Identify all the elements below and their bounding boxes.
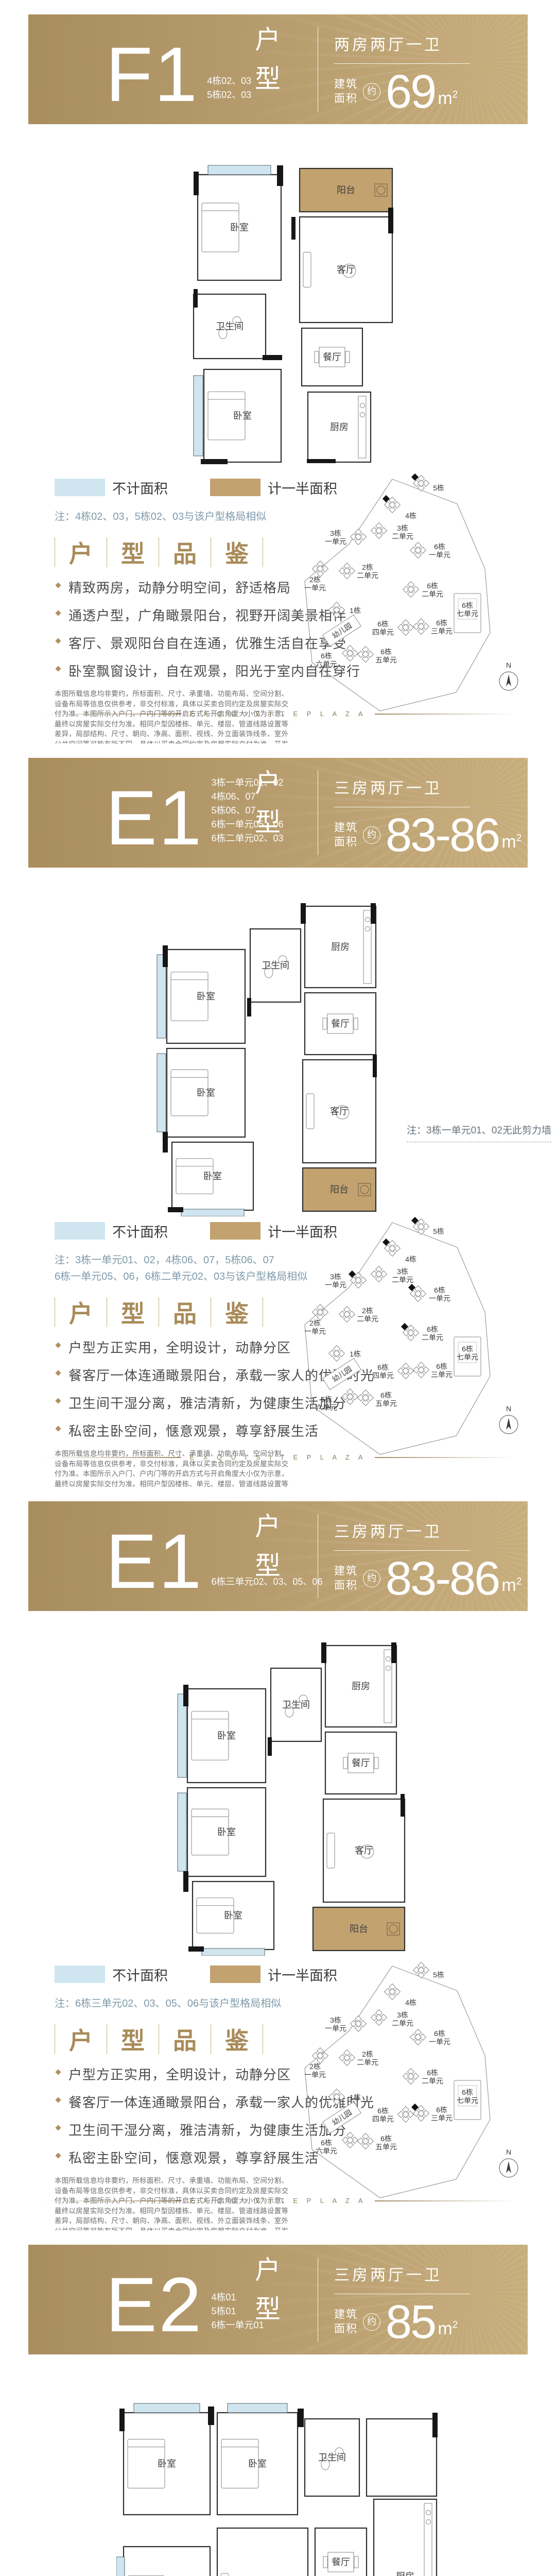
svg-text:卫生间: 卫生间: [216, 321, 244, 332]
unit-location-line: 4栋02、03: [207, 74, 251, 88]
svg-text:五单元: 五单元: [375, 2143, 397, 2151]
svg-text:四单元: 四单元: [372, 2115, 394, 2123]
header-right: 两房两厅一卫 建筑 面积 约 69 m2: [334, 32, 528, 113]
title-char: 品: [159, 1295, 211, 1329]
unit-code: E1: [106, 1532, 203, 1590]
legend-label-no-area: 不计面积: [112, 478, 168, 498]
legend-label-no-area: 不计面积: [112, 1221, 168, 1241]
footer-rule-right: [375, 2200, 515, 2201]
area-value: 83-86: [386, 814, 499, 857]
site-building: 5栋: [411, 473, 444, 492]
svg-text:2栋: 2栋: [362, 563, 373, 571]
svg-text:5栋: 5栋: [433, 484, 444, 492]
site-building: 2栋一单元: [304, 2048, 328, 2079]
legend-label-no-area: 不计面积: [112, 1964, 168, 1985]
svg-text:6栋: 6栋: [427, 2069, 438, 2077]
approx-badge: 约: [363, 826, 380, 844]
svg-text:厨房: 厨房: [331, 942, 350, 952]
brand-footer: E X Q U I S I T E P L A Z A: [41, 710, 515, 718]
room-卧室: 卧室: [187, 1788, 266, 1876]
layout-description: 三房两厅一卫: [334, 2262, 528, 2285]
svg-text:3栋: 3栋: [330, 529, 341, 537]
area-value: 85: [386, 2301, 435, 2344]
svg-text:2栋: 2栋: [309, 2062, 321, 2071]
area-row: 建筑 面积 约 83-86 m2: [334, 1557, 528, 1600]
site-building: 6栋四单元: [372, 1363, 413, 1380]
site-building: 6栋六单元: [316, 646, 358, 668]
svg-text:七单元: 七单元: [457, 1353, 478, 1361]
site-building: 6栋二单元: [401, 1323, 443, 1342]
unit-type-char: 型: [255, 809, 281, 835]
header-right: 三房两厅一卫 建筑 面积 约 83-86 m2: [334, 775, 528, 857]
svg-text:一单元: 一单元: [304, 584, 326, 592]
brand-name: E X Q U I S I T E P L A Z A: [181, 1453, 374, 1461]
site-building: 3栋一单元: [325, 529, 366, 546]
unit-type-char: 户: [255, 27, 281, 53]
site-building: 6栋一单元: [410, 543, 450, 559]
header-underline: [334, 63, 470, 64]
svg-text:6栋: 6栋: [380, 2134, 392, 2143]
site-building: 6栋六单元: [316, 2132, 358, 2155]
svg-text:3栋: 3栋: [330, 2016, 341, 2024]
brand-name: E X Q U I S I T E P L A Z A: [181, 2197, 374, 2205]
title-char: 户: [55, 535, 107, 569]
room-厨房: 厨房: [325, 1646, 396, 1727]
svg-text:卧室: 卧室: [230, 223, 249, 233]
header-underline: [334, 807, 470, 807]
title-char: 型: [107, 2022, 159, 2056]
room-卫生间: 卫生间: [250, 929, 301, 1002]
svg-text:二单元: 二单元: [422, 2077, 443, 2085]
svg-text:6栋: 6栋: [462, 1345, 473, 1353]
layout-description: 两房两厅一卫: [334, 32, 528, 55]
svg-text:卧室: 卧室: [224, 1910, 242, 1921]
floor-plan: 厨房卫生间卧室餐厅卧室卧室客厅阳台: [172, 1641, 430, 1956]
site-building: 6栋五单元: [358, 647, 397, 664]
area-value: 69: [386, 71, 435, 113]
room-卧室: 卧室: [193, 1882, 274, 1950]
title-char: 鉴: [211, 1295, 263, 1329]
unit-flyer-panel: E1 3栋一单元01、024栋06、075栋06、076栋一单元05、066栋二…: [0, 743, 556, 1487]
svg-text:二单元: 二单元: [357, 2058, 378, 2066]
svg-text:6栋: 6栋: [321, 1395, 332, 1403]
area-label-line: 建筑: [334, 1564, 358, 1579]
site-building: 6栋三单元: [413, 619, 453, 635]
site-building: 6栋四单元: [372, 2107, 413, 2123]
svg-text:二单元: 二单元: [392, 1276, 413, 1284]
unit-m: m: [438, 89, 452, 108]
title-char: 品: [159, 535, 211, 569]
flyer-page: F1 4栋02、035栋02、03 户 型 两房两厅一卫 建筑 面积 约 69: [0, 0, 556, 2576]
svg-text:四单元: 四单元: [372, 1371, 394, 1380]
svg-text:卫生间: 卫生间: [282, 1700, 310, 1710]
svg-text:餐厅: 餐厅: [323, 352, 341, 362]
svg-text:三单元: 三单元: [431, 627, 453, 635]
room-客厅: 客厅: [217, 2528, 308, 2576]
unit-type-label: 户 型: [255, 770, 281, 835]
room-卧室: 卧室: [187, 1689, 266, 1783]
unit-flyer-panel: E1 6栋三单元02、03、05、06 户 型 三房两厅一卫 建筑 面积 约 8…: [0, 1487, 556, 2230]
svg-text:6栋: 6栋: [427, 582, 438, 590]
title-bar: [263, 2024, 263, 2054]
room-卧室: 卧室: [217, 2413, 298, 2515]
room-客厅: 客厅: [303, 1060, 376, 1163]
room-厨房: 厨房: [308, 392, 371, 462]
title-char: 鉴: [211, 535, 263, 569]
svg-text:卧室: 卧室: [197, 991, 215, 1002]
svg-text:N: N: [506, 1404, 511, 1413]
svg-text:一单元: 一单元: [429, 551, 450, 559]
site-building: 2栋一单元: [304, 1304, 328, 1335]
area-label-line: 面积: [334, 2322, 358, 2336]
site-building: 6栋七单元: [454, 1337, 481, 1376]
approx-badge: 约: [363, 83, 380, 100]
room-餐厅: 餐厅: [315, 2528, 367, 2576]
room-厨房: 厨房: [374, 2499, 437, 2576]
unit-sup: 2: [516, 1576, 522, 1587]
unit-type-label: 户 型: [255, 2257, 281, 2322]
site-building: 1栋: [329, 2089, 361, 2105]
room-客厅: 客厅: [300, 217, 392, 323]
svg-text:厨房: 厨房: [330, 422, 349, 432]
svg-text:三单元: 三单元: [431, 1370, 453, 1379]
site-building: 幼儿园: [323, 2102, 361, 2133]
svg-text:N: N: [506, 661, 511, 669]
site-building: 4栋: [383, 495, 416, 520]
header-right: 三房两厅一卫 建筑 面积 约 83-86 m2: [334, 1519, 528, 1600]
svg-text:6栋: 6栋: [434, 543, 445, 551]
site-building: 幼儿园: [323, 1358, 361, 1389]
svg-text:6栋: 6栋: [377, 2107, 389, 2115]
svg-text:一单元: 一单元: [429, 2038, 450, 2046]
svg-text:4栋: 4栋: [405, 1255, 416, 1263]
legend-swatch-no-area: [55, 1965, 105, 1983]
svg-text:三单元: 三单元: [431, 2114, 453, 2122]
room-卧室: 卧室: [124, 2413, 210, 2515]
svg-text:2栋: 2栋: [309, 1319, 321, 1327]
svg-text:6栋: 6栋: [377, 620, 389, 628]
site-building: 5栋: [411, 1217, 444, 1235]
svg-text:餐厅: 餐厅: [352, 1758, 370, 1768]
site-building: 1栋: [329, 602, 361, 618]
svg-text:6栋: 6栋: [434, 2029, 445, 2038]
svg-text:客厅: 客厅: [337, 265, 355, 275]
unit-type-char: 户: [255, 2257, 281, 2283]
svg-text:6栋: 6栋: [427, 1325, 438, 1333]
svg-text:6栋: 6栋: [436, 1362, 447, 1370]
site-building: 2栋一单元: [304, 561, 328, 592]
area-label-line: 建筑: [334, 2308, 358, 2322]
room-卧室: 卧室: [172, 1142, 253, 1210]
site-building: 5栋: [413, 1962, 444, 1979]
area-row: 建筑 面积 约 85 m2: [334, 2301, 528, 2344]
svg-text:卧室: 卧室: [197, 1088, 215, 1098]
site-building: 3栋二单元: [371, 2010, 413, 2027]
layout-description: 三房两厅一卫: [334, 1519, 528, 1541]
unit-flyer-panel: E2 4栋015栋016栋一单元01 户 型 三房两厅一卫 建筑 面积 约 85: [0, 2230, 556, 2576]
header-right: 三房两厅一卫 建筑 面积 约 85 m2: [334, 2262, 528, 2344]
unit-locations: 4栋02、035栋02、03: [207, 74, 251, 104]
room-餐厅: 餐厅: [325, 1732, 396, 1794]
footer-rule-left: [41, 714, 181, 715]
title-bar: [263, 537, 263, 567]
area-label-line: 建筑: [334, 821, 358, 835]
unit-m: m: [501, 1575, 516, 1595]
svg-text:1栋: 1栋: [350, 606, 361, 615]
svg-text:一单元: 一单元: [304, 1327, 326, 1335]
header-underline: [334, 2294, 470, 2294]
room-卫生间: 卫生间: [194, 294, 266, 359]
svg-text:餐厅: 餐厅: [332, 2557, 350, 2567]
svg-text:卫生间: 卫生间: [262, 960, 289, 971]
header-divider: [318, 27, 318, 112]
panel-header: E1 3栋一单元01、024栋06、075栋06、076栋一单元05、066栋二…: [28, 758, 528, 868]
area-value: 83-86: [386, 1557, 499, 1600]
unit-type-char: 型: [255, 2296, 281, 2322]
svg-text:6栋: 6栋: [380, 1391, 392, 1399]
svg-text:二单元: 二单元: [357, 1315, 378, 1323]
brand-footer: E X Q U I S I T E P L A Z A: [41, 2197, 515, 2205]
svg-text:卧室: 卧室: [233, 411, 252, 421]
approx-badge: 约: [363, 1570, 380, 1587]
svg-text:卧室: 卧室: [217, 1827, 236, 1837]
svg-text:阳台: 阳台: [330, 1184, 349, 1195]
footer-rule-right: [375, 1457, 515, 1458]
room-客厅: 客厅: [323, 1799, 405, 1902]
svg-text:厨房: 厨房: [396, 2571, 414, 2576]
room-卧室: 卧室: [167, 1048, 245, 1137]
panel-header: E2 4栋015栋016栋一单元01 户 型 三房两厅一卫 建筑 面积 约 85: [28, 2245, 528, 2354]
site-building: 6栋三单元: [411, 2104, 453, 2122]
svg-text:6栋: 6栋: [377, 1363, 389, 1371]
svg-text:6栋: 6栋: [321, 2139, 332, 2147]
header-divider: [318, 2257, 318, 2342]
unit-type-label: 户 型: [255, 1514, 281, 1579]
svg-text:二单元: 二单元: [357, 571, 378, 580]
svg-text:N: N: [506, 2148, 511, 2156]
site-building: 6栋五单元: [358, 1390, 397, 1408]
room-卫生间: 卫生间: [271, 1668, 321, 1741]
site-building: 6栋二单元: [403, 2069, 443, 2085]
svg-text:6栋: 6栋: [436, 619, 447, 627]
svg-text:5栋: 5栋: [433, 1971, 444, 1979]
svg-text:一单元: 一单元: [304, 2071, 326, 2079]
unit-location-line: 5栋02、03: [207, 88, 251, 102]
unit-type-char: 型: [255, 1553, 281, 1579]
svg-text:2栋: 2栋: [309, 575, 321, 584]
svg-text:一单元: 一单元: [325, 537, 346, 546]
site-building: 3栋一单元: [325, 2016, 366, 2032]
area-label-line: 面积: [334, 1579, 358, 1593]
legend-swatch-no-area: [55, 479, 105, 496]
svg-text:七单元: 七单元: [457, 609, 478, 618]
unit-code: E2: [106, 2275, 203, 2334]
svg-text:4栋: 4栋: [405, 512, 416, 520]
unit-m: m: [438, 2319, 452, 2338]
svg-text:七单元: 七单元: [457, 2096, 478, 2105]
site-building: 2栋二单元: [339, 563, 378, 580]
svg-text:3栋: 3栋: [397, 2011, 408, 2019]
svg-text:6栋: 6栋: [321, 652, 332, 660]
room-卫生间: 卫生间: [305, 2419, 359, 2496]
area-label-line: 建筑: [334, 77, 358, 92]
site-building: 4栋: [383, 1239, 416, 1263]
svg-text:阳台: 阳台: [337, 185, 355, 195]
unit-flyer-panel: F1 4栋02、035栋02、03 户 型 两房两厅一卫 建筑 面积 约 69: [0, 0, 556, 743]
site-building: 6栋五单元: [358, 2133, 397, 2151]
unit-m: m: [501, 832, 516, 852]
unit-type-char: 户: [255, 1514, 281, 1539]
svg-text:6栋: 6栋: [462, 601, 473, 609]
room: [367, 2419, 437, 2496]
svg-text:1栋: 1栋: [350, 1350, 361, 1358]
svg-text:餐厅: 餐厅: [331, 1019, 350, 1029]
area-label: 建筑 面积: [334, 77, 358, 107]
title-char: 鉴: [211, 2022, 263, 2056]
unit-type-char: 型: [255, 66, 281, 92]
unit-code: E1: [106, 788, 203, 847]
legend-swatch-half-area: [210, 1965, 260, 1983]
svg-text:2栋: 2栋: [362, 2050, 373, 2058]
svg-text:3栋: 3栋: [397, 1267, 408, 1276]
area-label: 建筑 面积: [334, 821, 358, 850]
unit-sup: 2: [453, 89, 458, 100]
site-building: 幼儿园: [323, 615, 361, 646]
unit-sup: 2: [516, 833, 522, 843]
svg-text:卫生间: 卫生间: [318, 2452, 346, 2463]
legend-swatch-half-area: [210, 1222, 260, 1240]
svg-text:四单元: 四单元: [372, 628, 394, 636]
room-卧室: 卧室: [124, 2547, 210, 2576]
title-char: 品: [159, 2022, 211, 2056]
svg-text:4栋: 4栋: [405, 1998, 416, 2007]
title-char: 型: [107, 1295, 159, 1329]
footer-rule-right: [375, 714, 515, 715]
header-divider: [318, 770, 318, 855]
floor-plan: 厨房卫生间卧室餐厅卧室卧室客厅阳台: [154, 902, 407, 1216]
site-building: 3栋二单元: [371, 523, 413, 540]
site-building: 6栋六单元: [316, 1389, 358, 1412]
area-row: 建筑 面积 约 69 m2: [334, 71, 528, 113]
site-building: 3栋二单元: [371, 1266, 413, 1284]
floor-plan: 卧室卧室卫生间卧室客厅餐厅厨房阳台: [116, 2398, 446, 2576]
brand-name: E X Q U I S I T E P L A Z A: [181, 710, 374, 718]
panel-header: F1 4栋02、035栋02、03 户 型 两房两厅一卫 建筑 面积 约 69: [28, 14, 528, 124]
room-卧室: 卧室: [167, 950, 245, 1043]
header-underline: [334, 1550, 470, 1551]
svg-text:六单元: 六单元: [316, 1403, 337, 1412]
svg-text:一单元: 一单元: [325, 2024, 346, 2032]
site-building: 6栋四单元: [372, 620, 413, 636]
site-building: 4栋: [385, 1984, 416, 2007]
site-plan: 5栋4栋3栋二单元3栋一单元6栋一单元2栋二单元2栋一单元6栋二单元6栋七单元6…: [304, 1216, 546, 1459]
svg-text:6栋: 6栋: [436, 2106, 447, 2114]
north-compass: N: [499, 1404, 518, 1434]
north-compass: N: [499, 2148, 518, 2177]
site-plan: 5栋4栋3栋二单元3栋一单元6栋一单元2栋二单元2栋一单元6栋二单元6栋七单元6…: [304, 1960, 546, 2202]
site-building: 6栋一单元: [408, 1284, 450, 1302]
room-厨房: 厨房: [305, 906, 376, 988]
unit-type-char: 户: [255, 770, 281, 796]
legend-swatch-no-area: [55, 1222, 105, 1240]
panel-header: E1 6栋三单元02、03、05、06 户 型 三房两厅一卫 建筑 面积 约 8…: [28, 1501, 528, 1611]
footer-rule-left: [41, 2200, 181, 2201]
area-label: 建筑 面积: [334, 1564, 358, 1594]
site-building: 2栋二单元: [339, 1307, 378, 1323]
room-阳台: 阳台: [313, 1907, 405, 1951]
room-阳台: 阳台: [300, 168, 392, 212]
title-char: 户: [55, 2022, 107, 2056]
svg-text:3栋: 3栋: [397, 524, 408, 532]
svg-text:客厅: 客厅: [355, 1845, 373, 1856]
svg-text:卧室: 卧室: [203, 1171, 222, 1181]
site-building: 3栋一单元: [325, 1270, 366, 1289]
svg-text:五单元: 五单元: [375, 1399, 397, 1408]
unit-code-block: F1 4栋02、035栋02、03: [106, 45, 251, 104]
layout-description: 三房两厅一卫: [334, 775, 528, 798]
svg-text:阳台: 阳台: [350, 1924, 368, 1934]
room-卧室: 卧室: [198, 175, 281, 280]
svg-text:一单元: 一单元: [429, 1294, 450, 1302]
area-unit: m2: [438, 2319, 458, 2344]
area-row: 建筑 面积 约 83-86 m2: [334, 814, 528, 857]
area-label-line: 面积: [334, 835, 358, 850]
title-char: 户: [55, 1295, 107, 1329]
svg-text:二单元: 二单元: [392, 2019, 413, 2027]
svg-text:一单元: 一单元: [325, 1281, 346, 1289]
svg-text:客厅: 客厅: [330, 1106, 349, 1116]
header-divider: [318, 1514, 318, 1599]
title-bar: [263, 1297, 263, 1327]
room-阳台: 阳台: [303, 1168, 376, 1211]
area-label: 建筑 面积: [334, 2308, 358, 2337]
svg-text:5栋: 5栋: [433, 1227, 444, 1235]
unit-code-block: E1 6栋三单元02、03、05、06: [106, 1532, 323, 1590]
title-char: 型: [107, 535, 159, 569]
site-building: 6栋七单元: [454, 594, 481, 633]
unit-code: F1: [106, 45, 199, 104]
approx-badge: 约: [363, 2313, 380, 2331]
svg-text:卧室: 卧室: [248, 2459, 267, 2469]
svg-text:2栋: 2栋: [362, 1307, 373, 1315]
svg-text:6栋: 6栋: [434, 1286, 445, 1294]
svg-text:二单元: 二单元: [422, 1333, 443, 1342]
svg-text:六单元: 六单元: [316, 2147, 337, 2155]
svg-text:二单元: 二单元: [422, 590, 443, 598]
svg-text:卧室: 卧室: [158, 2459, 176, 2469]
site-building: 6栋七单元: [454, 2080, 481, 2120]
unit-code-block: E2 4栋015栋016栋一单元01: [106, 2275, 264, 2334]
svg-text:1栋: 1栋: [350, 2093, 361, 2102]
site-building: 1栋: [329, 1346, 361, 1362]
unit-sup: 2: [453, 2319, 458, 2330]
room-卧室: 卧室: [204, 369, 281, 462]
svg-text:厨房: 厨房: [352, 1681, 370, 1691]
svg-text:3栋: 3栋: [330, 1273, 341, 1281]
site-building: 6栋二单元: [403, 582, 443, 598]
north-compass: N: [499, 661, 518, 690]
svg-text:6栋: 6栋: [380, 648, 392, 656]
area-label-line: 面积: [334, 92, 358, 106]
legend-swatch-half-area: [210, 479, 260, 496]
site-building: 2栋二单元: [339, 2050, 378, 2066]
room-餐厅: 餐厅: [302, 328, 362, 386]
svg-text:二单元: 二单元: [392, 532, 413, 540]
svg-text:六单元: 六单元: [316, 660, 337, 668]
unit-type-label: 户 型: [255, 27, 281, 92]
area-unit: m2: [501, 832, 522, 857]
svg-text:6栋: 6栋: [462, 2088, 473, 2096]
